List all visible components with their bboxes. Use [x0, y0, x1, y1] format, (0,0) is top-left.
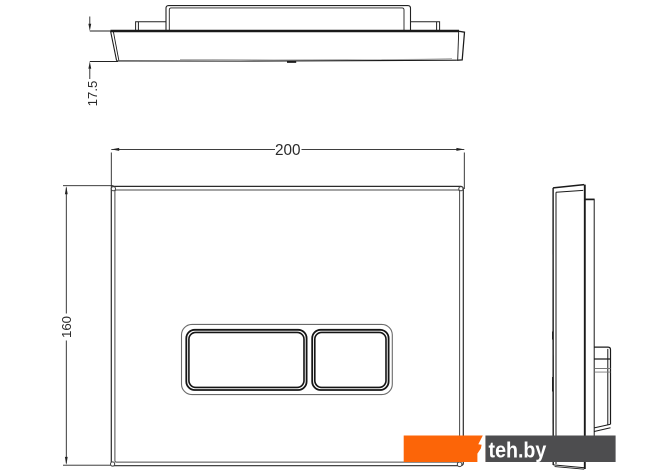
svg-text:160: 160 — [59, 316, 74, 338]
svg-text:200: 200 — [275, 142, 301, 159]
svg-text:teh.by: teh.by — [489, 438, 547, 463]
svg-text:17.5: 17.5 — [85, 81, 100, 107]
